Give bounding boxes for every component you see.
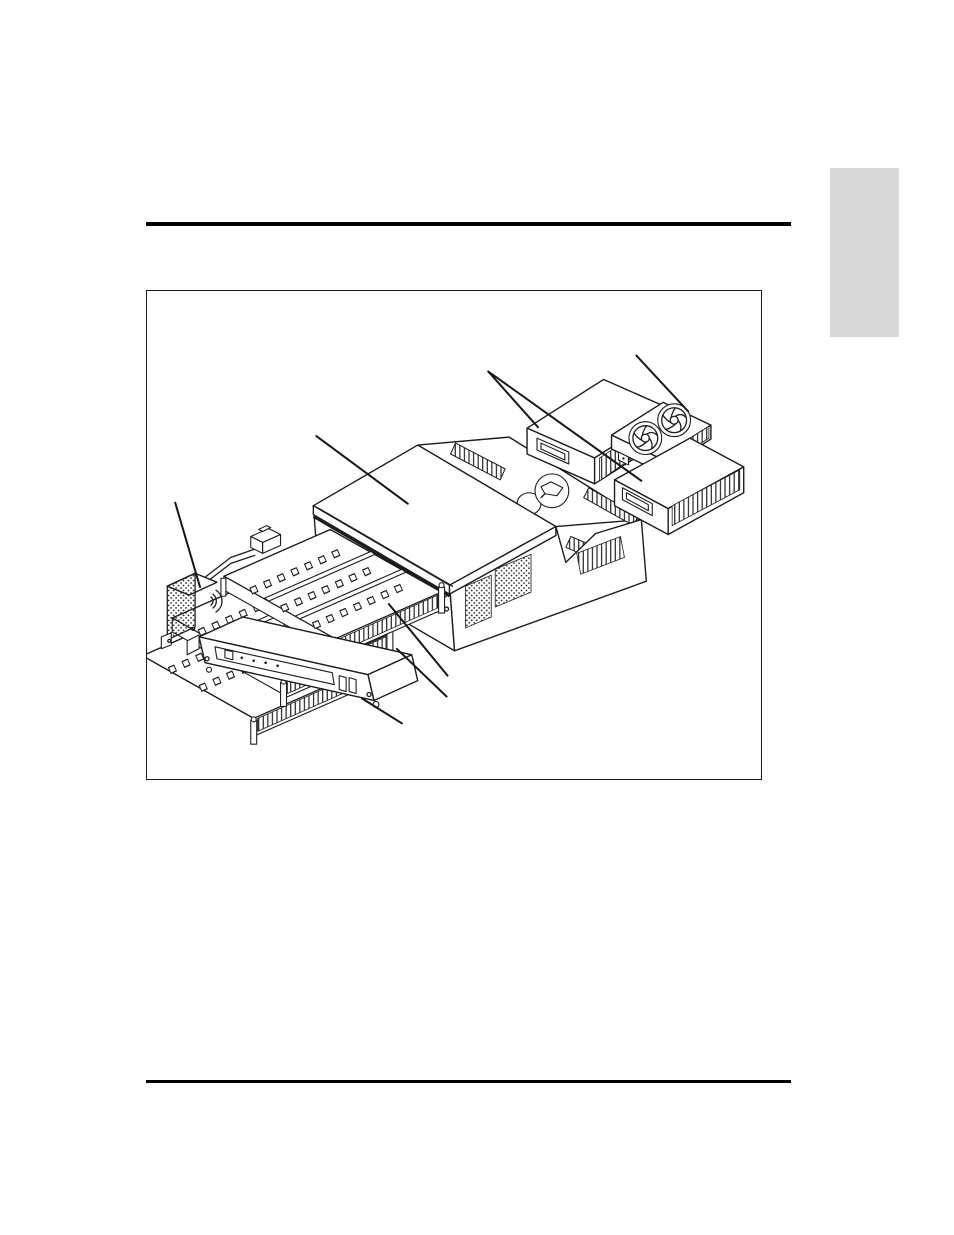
leader-bottom-tray — [362, 698, 402, 723]
chapter-tab-marker — [830, 168, 899, 337]
leader-upper-psu — [488, 372, 538, 428]
leader-left-module — [175, 503, 200, 587]
figure-frame — [146, 290, 762, 780]
latch-block — [251, 526, 281, 554]
exploded-view-illustration — [147, 291, 761, 779]
footer-rule — [146, 1080, 791, 1083]
section-divider-rule — [146, 222, 791, 226]
manual-page — [0, 0, 954, 1235]
